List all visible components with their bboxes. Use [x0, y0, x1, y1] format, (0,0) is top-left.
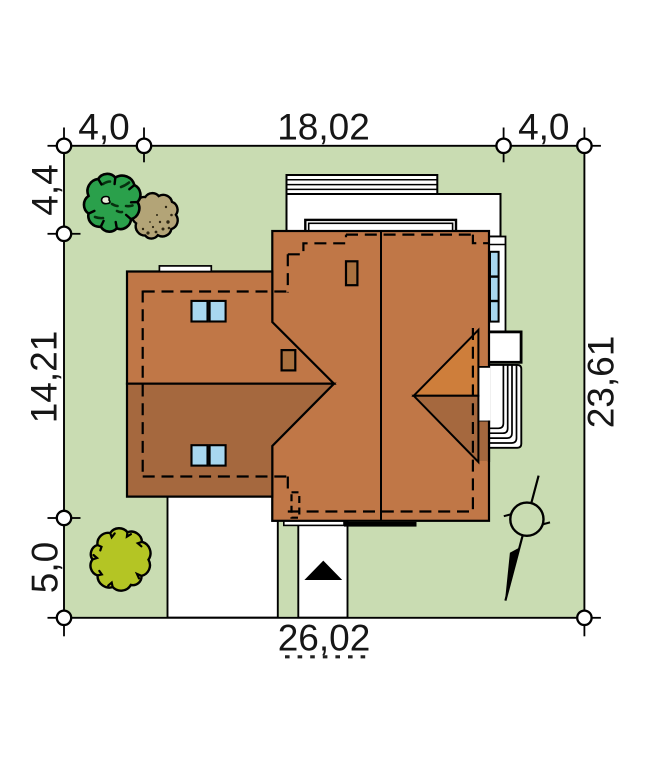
svg-text:5,0: 5,0: [25, 542, 66, 593]
svg-text:14,21: 14,21: [24, 331, 65, 424]
svg-text:4,0: 4,0: [78, 106, 129, 147]
svg-text:18,02: 18,02: [277, 106, 370, 147]
svg-text:26,02: 26,02: [278, 617, 371, 658]
svg-text:4,4: 4,4: [25, 164, 66, 215]
svg-text:4,0: 4,0: [518, 106, 569, 147]
svg-text:23,61: 23,61: [581, 336, 622, 429]
